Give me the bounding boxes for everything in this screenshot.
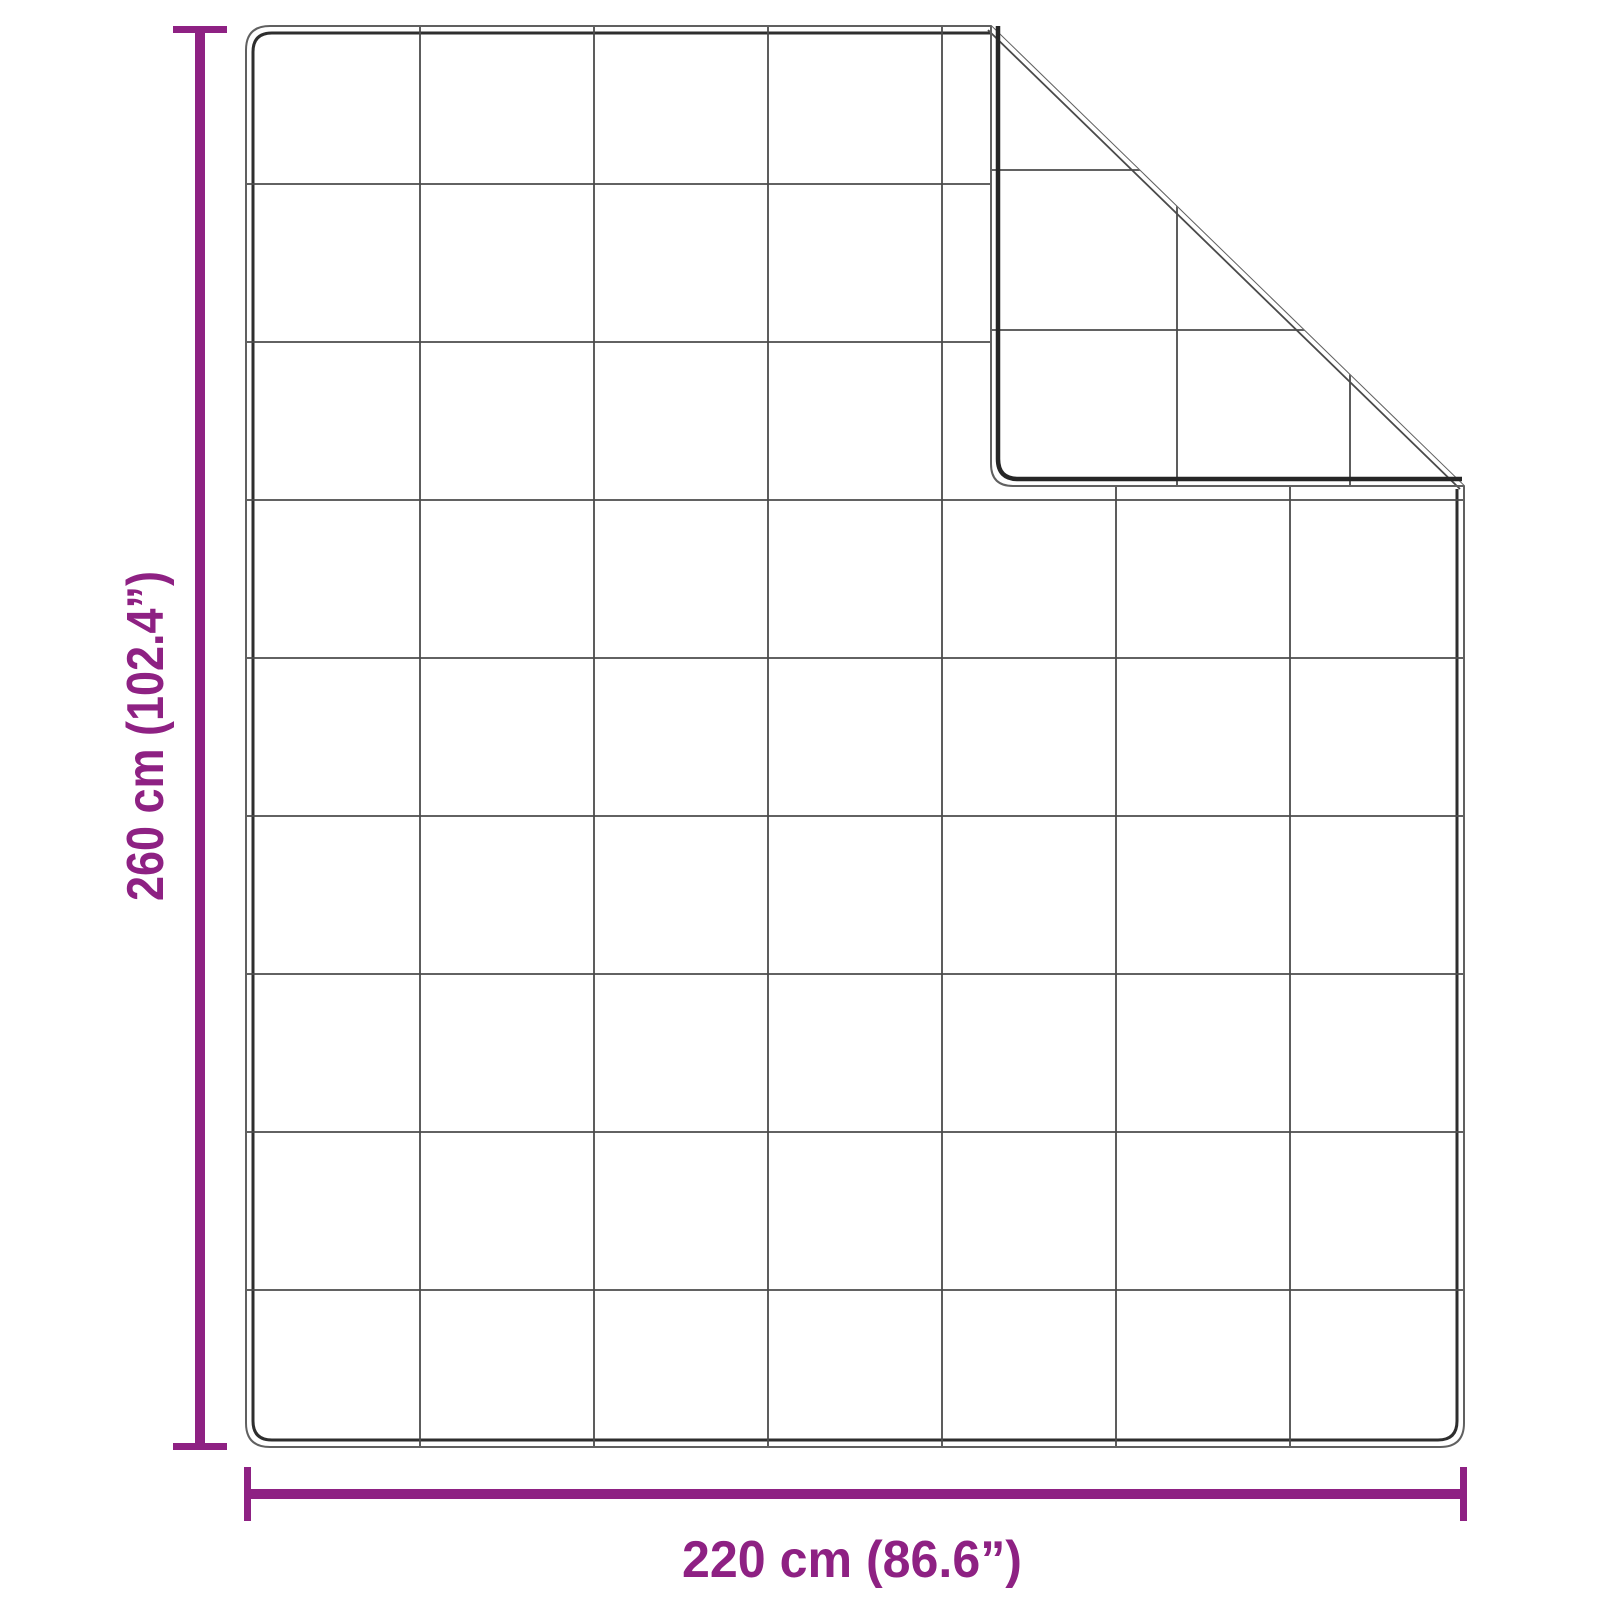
blanket-outline bbox=[246, 26, 1464, 1447]
height-dimension-top-cap bbox=[173, 26, 227, 33]
folded-corner bbox=[988, 26, 1464, 489]
width-dimension-left-cap bbox=[244, 1467, 251, 1521]
width-dimension: 220 cm (86.6”) bbox=[244, 1467, 1467, 1589]
width-dimension-label: 220 cm (86.6”) bbox=[682, 1531, 1022, 1589]
width-dimension-line bbox=[250, 1489, 1461, 1499]
width-dimension-right-cap bbox=[1460, 1467, 1467, 1521]
height-dimension-line bbox=[195, 29, 205, 1447]
height-dimension-bottom-cap bbox=[173, 1443, 227, 1450]
blanket-dimension-drawing: 260 cm (102.4”) 220 cm (86.6”) bbox=[0, 0, 1600, 1600]
blanket bbox=[246, 26, 1464, 1447]
dimension-diagram: 260 cm (102.4”) 220 cm (86.6”) bbox=[0, 0, 1600, 1600]
height-dimension: 260 cm (102.4”) bbox=[117, 26, 227, 1450]
height-dimension-label: 260 cm (102.4”) bbox=[117, 571, 175, 901]
